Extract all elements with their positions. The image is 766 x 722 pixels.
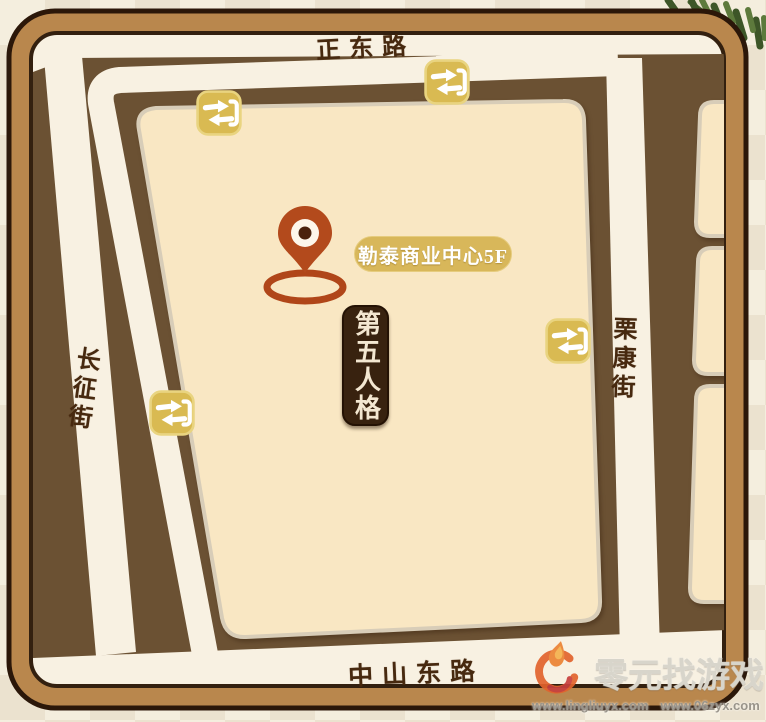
destination-label-pill: 勒泰商业中心5F xyxy=(354,236,512,272)
venue-banner: 第五人格 xyxy=(342,305,389,426)
east-block-bottom xyxy=(690,386,726,602)
transfer-icon xyxy=(151,392,194,435)
transfer-icon xyxy=(426,61,469,104)
transfer-icon xyxy=(547,320,590,363)
venue-banner-label: 第五人格 xyxy=(353,310,379,422)
east-block-middle xyxy=(694,248,726,374)
east-block-top xyxy=(696,102,726,236)
road-label-zhongshan-east-road: 中山东路 xyxy=(347,651,484,693)
road-label-zhengdong-road: 正东路 xyxy=(315,25,416,65)
transfer-icon xyxy=(198,92,241,135)
road-label-likang-street: 栗康街 xyxy=(602,315,640,403)
event-location-map-page: { "map": { "roads": { "north": { "label"… xyxy=(0,0,766,722)
